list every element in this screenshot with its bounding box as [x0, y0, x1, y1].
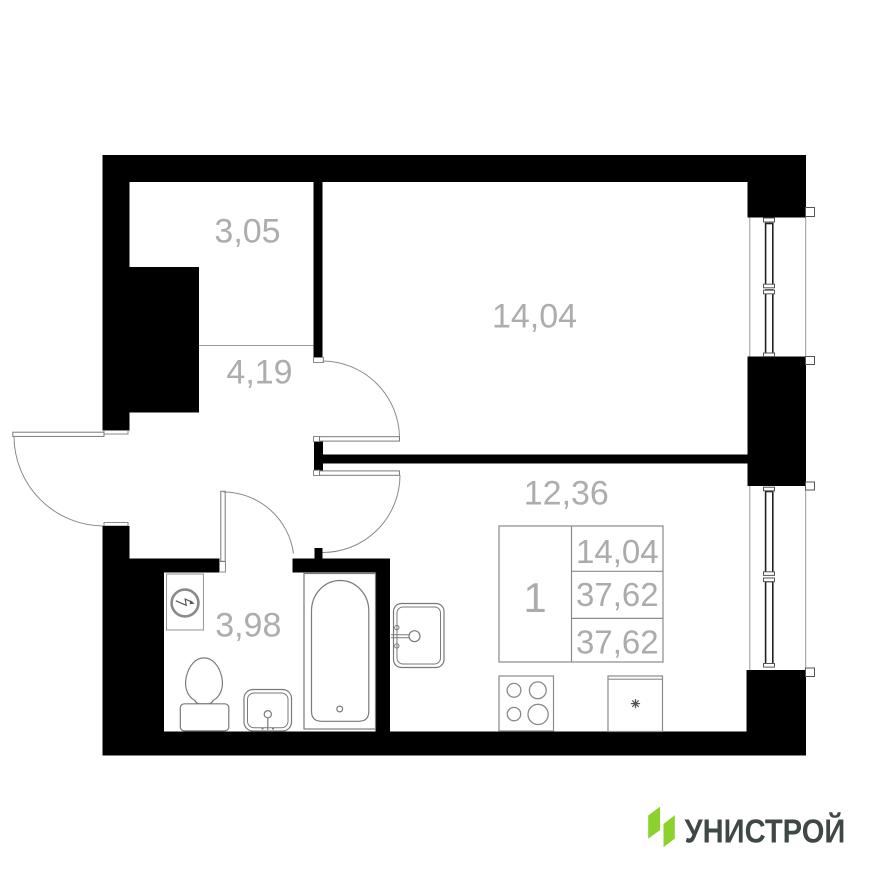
- svg-text:14,04: 14,04: [576, 533, 659, 570]
- svg-text:37,62: 37,62: [576, 576, 659, 613]
- svg-text:12,36: 12,36: [524, 475, 609, 513]
- svg-text:4,19: 4,19: [226, 354, 292, 392]
- svg-text:37,62: 37,62: [576, 624, 659, 661]
- svg-text:14,04: 14,04: [492, 298, 577, 336]
- svg-text:3,05: 3,05: [214, 213, 280, 251]
- svg-text:3,98: 3,98: [215, 607, 281, 645]
- svg-text:1: 1: [523, 574, 546, 621]
- svg-text:УНИСТРОЙ: УНИСТРОЙ: [685, 811, 846, 849]
